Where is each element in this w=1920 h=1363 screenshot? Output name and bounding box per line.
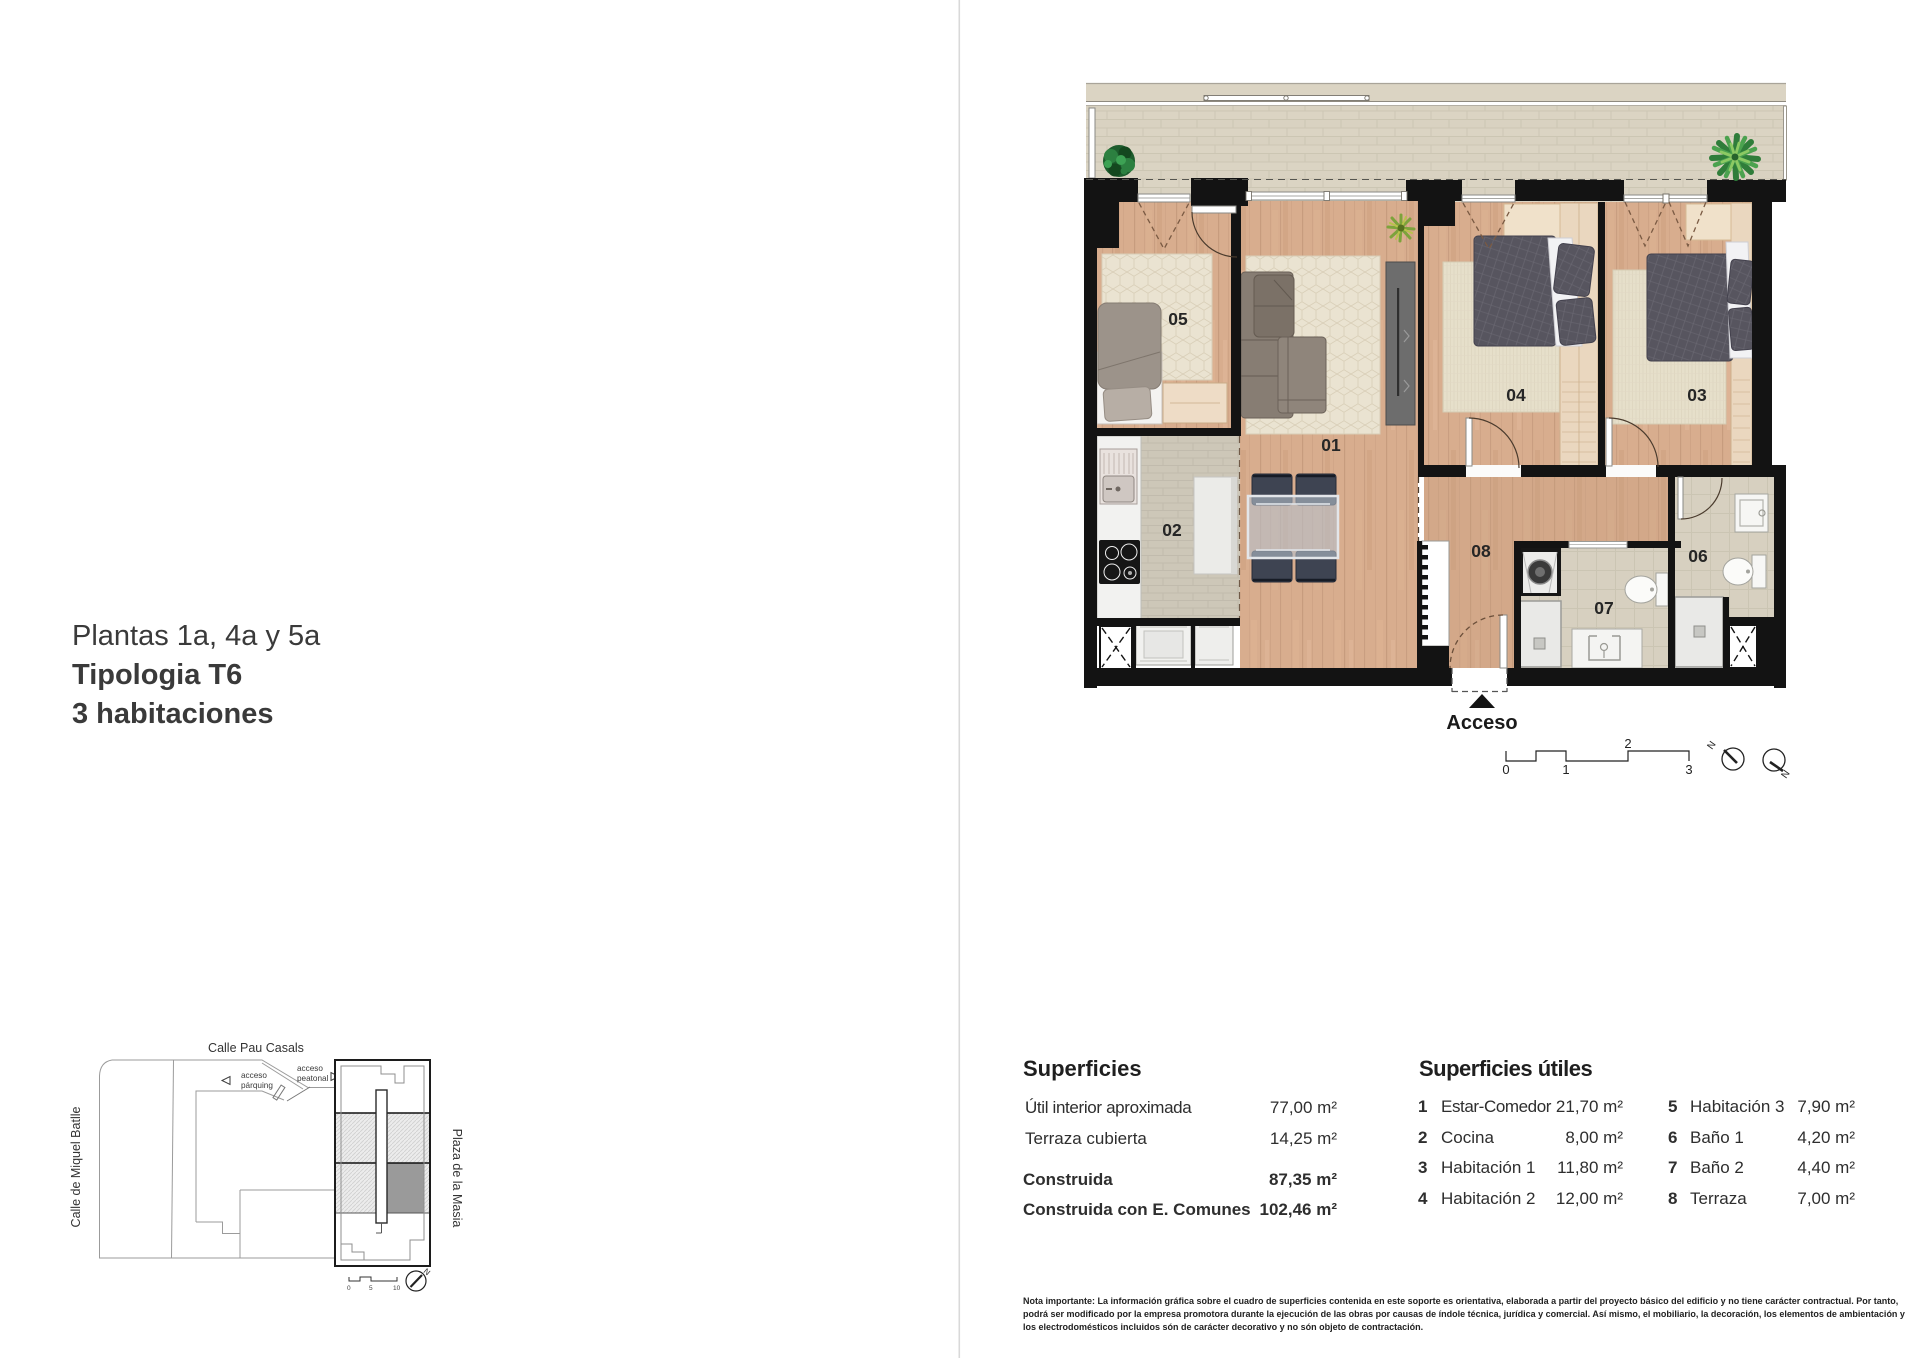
svg-text:03: 03: [1687, 385, 1707, 405]
svg-text:acceso: acceso: [241, 1071, 267, 1080]
svg-text:Tipologia T6: Tipologia T6: [72, 659, 242, 691]
svg-text:Habitación 3: Habitación 3: [1690, 1097, 1785, 1116]
svg-text:21,70 m²: 21,70 m²: [1556, 1097, 1623, 1116]
svg-text:05: 05: [1168, 309, 1188, 329]
svg-text:Baño 1: Baño 1: [1690, 1128, 1744, 1147]
svg-text:77,00 m²: 77,00 m²: [1270, 1098, 1337, 1117]
svg-text:Calle Pau Casals: Calle Pau Casals: [208, 1041, 304, 1055]
svg-text:06: 06: [1688, 546, 1708, 566]
svg-text:2: 2: [1624, 736, 1631, 751]
svg-text:5: 5: [1668, 1097, 1677, 1116]
svg-text:acceso: acceso: [297, 1064, 323, 1073]
svg-text:14,25 m²: 14,25 m²: [1270, 1129, 1337, 1148]
svg-text:Habitación 2: Habitación 2: [1441, 1189, 1536, 1208]
svg-text:5: 5: [369, 1285, 373, 1292]
svg-text:Cocina: Cocina: [1441, 1128, 1494, 1147]
svg-text:Plantas 1a, 4a y 5a: Plantas 1a, 4a y 5a: [72, 620, 321, 652]
svg-text:podrá ser modificado por la em: podrá ser modificado por la empresa prom…: [1023, 1309, 1905, 1319]
svg-text:07: 07: [1594, 598, 1613, 618]
svg-text:2: 2: [1418, 1128, 1427, 1147]
svg-text:0: 0: [347, 1285, 351, 1292]
svg-text:7,00 m²: 7,00 m²: [1797, 1189, 1855, 1208]
svg-text:4,20 m²: 4,20 m²: [1797, 1128, 1855, 1147]
svg-text:4: 4: [1418, 1189, 1428, 1208]
svg-text:04: 04: [1506, 385, 1526, 405]
svg-text:Plaza de la Masia: Plaza de la Masia: [450, 1129, 464, 1228]
svg-text:peatonal: peatonal: [297, 1074, 329, 1083]
svg-text:12,00 m²: 12,00 m²: [1556, 1189, 1623, 1208]
svg-text:Baño 2: Baño 2: [1690, 1158, 1744, 1177]
svg-text:01: 01: [1321, 435, 1341, 455]
svg-text:Construida con E. Comunes: Construida con E. Comunes: [1023, 1200, 1251, 1219]
svg-text:Terraza: Terraza: [1690, 1189, 1747, 1208]
svg-text:0: 0: [1502, 762, 1509, 777]
svg-text:4,40 m²: 4,40 m²: [1797, 1158, 1855, 1177]
svg-text:08: 08: [1471, 541, 1491, 561]
svg-text:Construida: Construida: [1023, 1170, 1113, 1189]
svg-text:Superficies: Superficies: [1023, 1056, 1142, 1081]
svg-text:Estar-Comedor: Estar-Comedor: [1441, 1097, 1552, 1116]
svg-text:Acceso: Acceso: [1446, 712, 1517, 734]
svg-text:10: 10: [393, 1285, 401, 1292]
svg-text:6: 6: [1668, 1128, 1677, 1147]
svg-text:7,90 m²: 7,90 m²: [1797, 1097, 1855, 1116]
svg-text:02: 02: [1162, 520, 1182, 540]
svg-text:Habitación 1: Habitación 1: [1441, 1158, 1536, 1177]
svg-text:102,46 m²: 102,46 m²: [1260, 1200, 1338, 1219]
svg-text:Nota importante: La informació: Nota importante: La información gráfica …: [1023, 1296, 1898, 1306]
svg-text:Terraza cubierta: Terraza cubierta: [1025, 1129, 1147, 1148]
svg-text:87,35 m²: 87,35 m²: [1269, 1170, 1337, 1189]
svg-text:3: 3: [1418, 1158, 1427, 1177]
svg-text:7: 7: [1668, 1158, 1677, 1177]
svg-text:11,80 m²: 11,80 m²: [1557, 1158, 1623, 1177]
svg-text:3 habitaciones: 3 habitaciones: [72, 698, 273, 730]
svg-text:los electrodomésticos incluido: los electrodomésticos incluidos són de c…: [1023, 1322, 1423, 1332]
svg-text:Útil interior aproximada: Útil interior aproximada: [1025, 1098, 1192, 1117]
svg-text:Superficies útiles: Superficies útiles: [1419, 1056, 1592, 1081]
svg-text:1: 1: [1418, 1097, 1427, 1116]
svg-text:8: 8: [1668, 1189, 1677, 1208]
svg-text:3: 3: [1685, 762, 1692, 777]
svg-text:8,00 m²: 8,00 m²: [1565, 1128, 1623, 1147]
svg-text:Calle de Miquel Batlle: Calle de Miquel Batlle: [69, 1107, 83, 1228]
svg-text:1: 1: [1562, 762, 1569, 777]
svg-text:párquing: párquing: [241, 1081, 273, 1090]
